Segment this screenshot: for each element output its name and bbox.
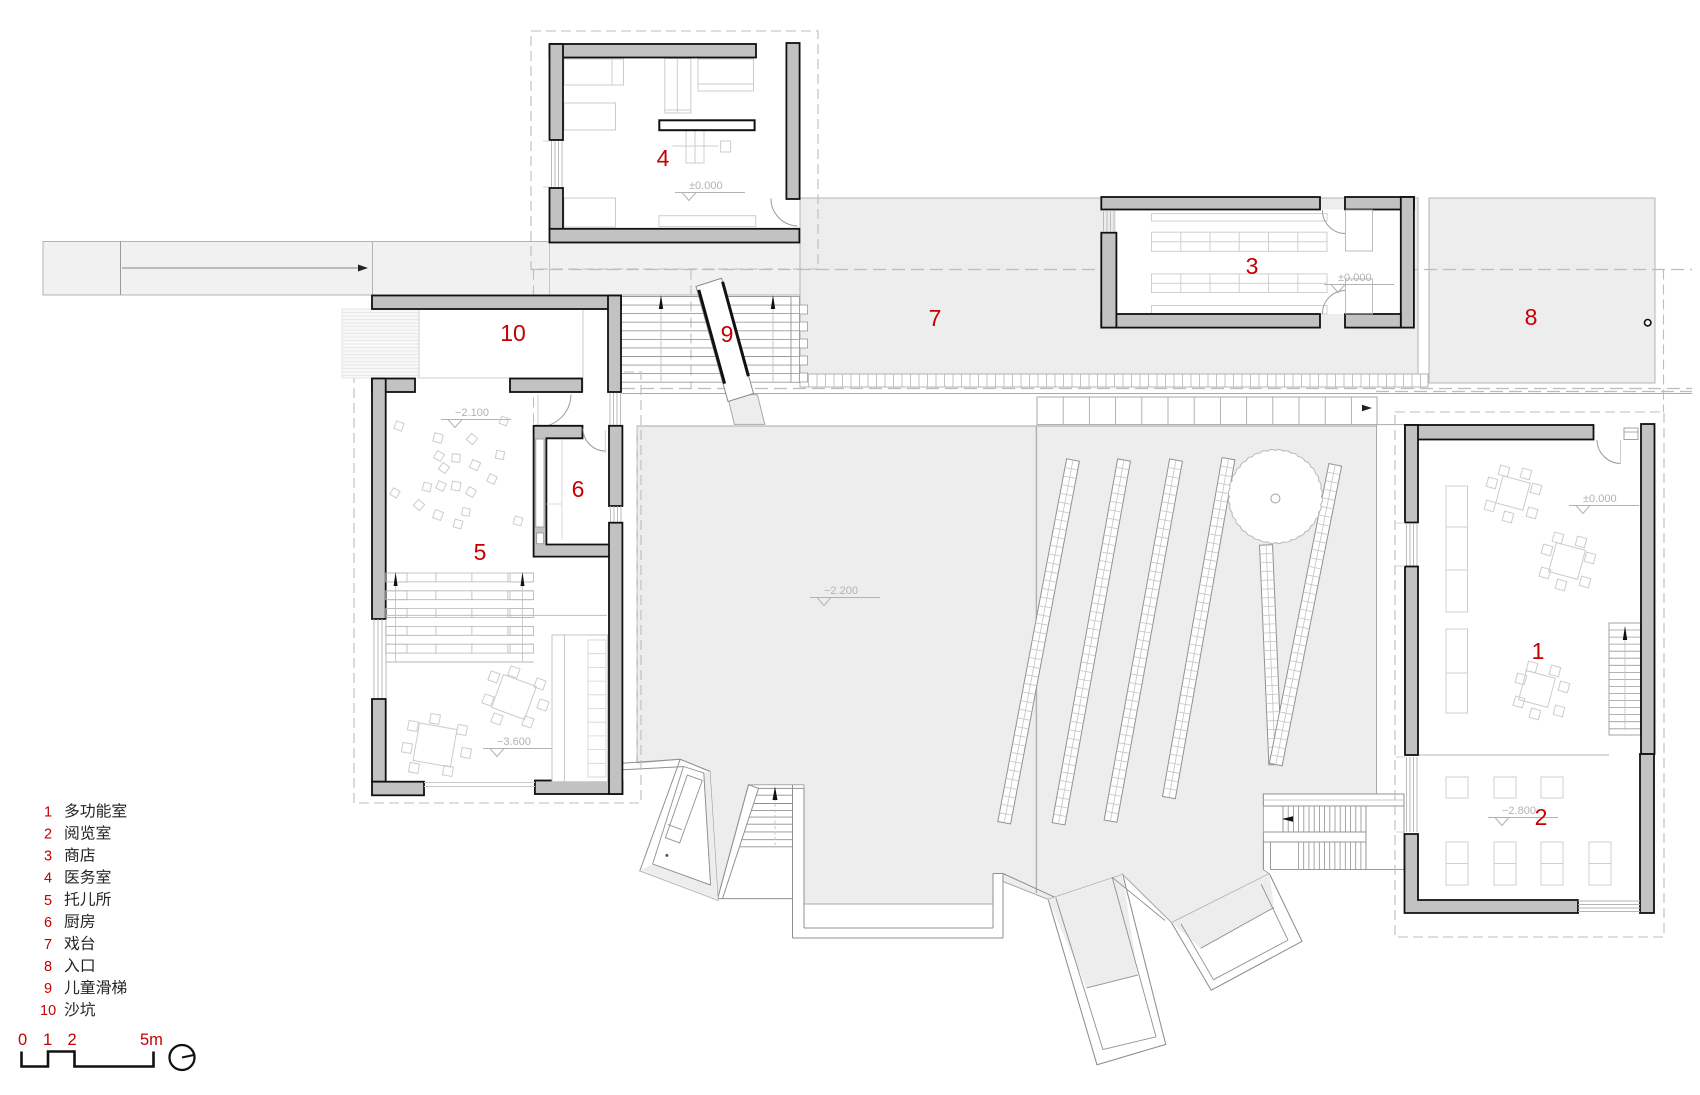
svg-text:9: 9: [44, 981, 52, 997]
svg-text:9: 9: [721, 321, 734, 347]
svg-text:10: 10: [500, 320, 526, 346]
svg-text:1: 1: [44, 805, 52, 821]
svg-text:2: 2: [68, 1031, 77, 1049]
svg-text:±0.000: ±0.000: [1583, 493, 1617, 505]
svg-text:±0.000: ±0.000: [689, 180, 723, 192]
svg-text:2: 2: [44, 827, 52, 843]
svg-text:5m: 5m: [140, 1031, 163, 1049]
svg-text:4: 4: [657, 145, 670, 171]
svg-text:1: 1: [43, 1031, 52, 1049]
svg-text:10: 10: [40, 1003, 56, 1019]
svg-text:7: 7: [44, 937, 52, 953]
svg-text:−2.100: −2.100: [455, 407, 489, 419]
svg-text:−3.600: −3.600: [497, 736, 531, 748]
svg-text:2: 2: [1535, 804, 1548, 830]
svg-text:6: 6: [44, 915, 52, 931]
svg-text:4: 4: [44, 871, 52, 887]
svg-text:8: 8: [1525, 304, 1538, 330]
svg-text:5: 5: [44, 893, 52, 909]
svg-text:3: 3: [1246, 253, 1259, 279]
svg-text:0: 0: [18, 1031, 27, 1049]
svg-text:1: 1: [1532, 638, 1545, 664]
svg-text:6: 6: [572, 476, 585, 502]
svg-text:7: 7: [929, 305, 942, 331]
svg-text:±0.000: ±0.000: [1338, 272, 1372, 284]
svg-text:5: 5: [474, 539, 487, 565]
svg-text:8: 8: [44, 959, 52, 975]
svg-text:−2.800: −2.800: [1502, 805, 1536, 817]
svg-text:−2.200: −2.200: [824, 585, 858, 597]
svg-text:3: 3: [44, 849, 52, 865]
